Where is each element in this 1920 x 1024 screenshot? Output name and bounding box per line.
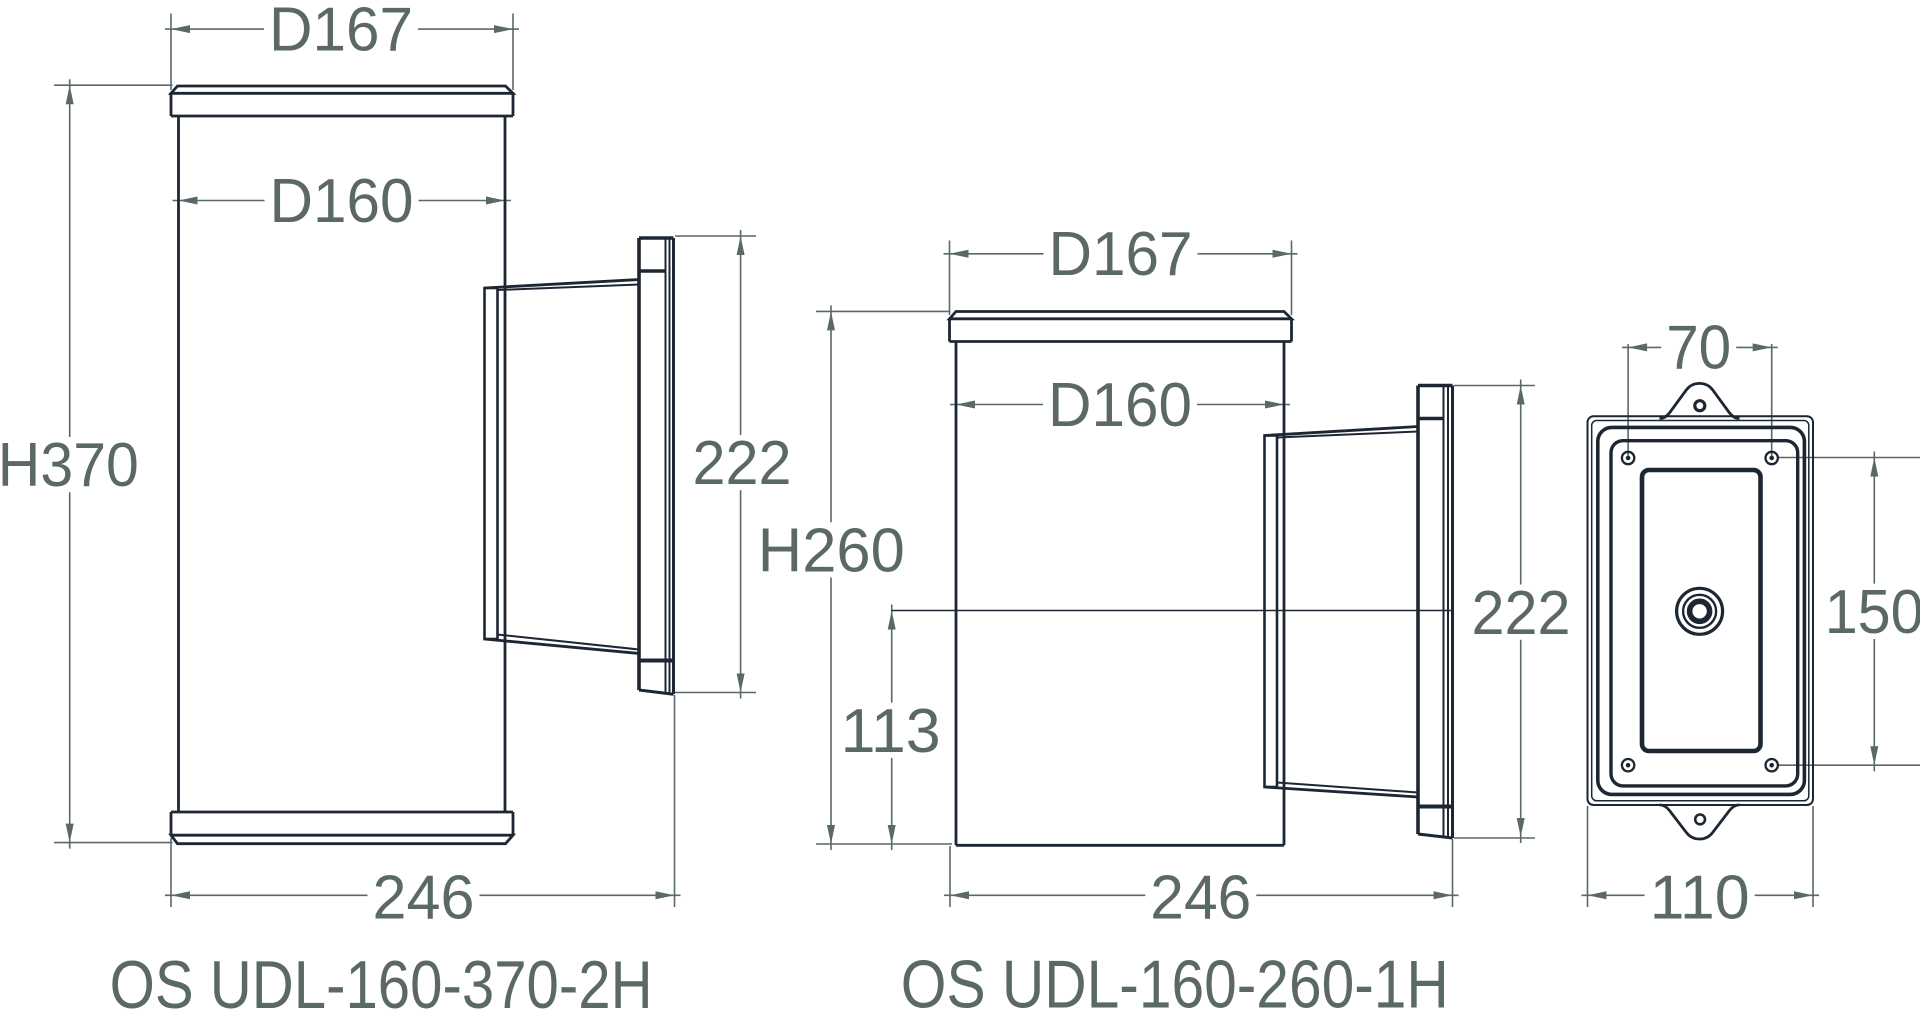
svg-text:222: 222 bbox=[693, 429, 792, 498]
svg-text:70: 70 bbox=[1666, 314, 1731, 383]
svg-text:D167: D167 bbox=[269, 0, 413, 64]
svg-text:OS UDL-160-260-1H: OS UDL-160-260-1H bbox=[901, 947, 1449, 1023]
svg-text:D167: D167 bbox=[1049, 220, 1193, 289]
svg-text:110: 110 bbox=[1650, 863, 1750, 932]
svg-text:246: 246 bbox=[373, 863, 475, 932]
svg-text:D160: D160 bbox=[1048, 371, 1192, 440]
svg-text:OS UDL-160-370-2H: OS UDL-160-370-2H bbox=[110, 947, 653, 1023]
svg-text:113: 113 bbox=[841, 697, 941, 766]
svg-text:222: 222 bbox=[1472, 579, 1571, 648]
svg-text:H260: H260 bbox=[758, 517, 905, 586]
svg-text:246: 246 bbox=[1150, 863, 1251, 932]
svg-text:D160: D160 bbox=[270, 167, 414, 236]
svg-text:H370: H370 bbox=[0, 431, 139, 500]
svg-text:150: 150 bbox=[1825, 578, 1920, 647]
